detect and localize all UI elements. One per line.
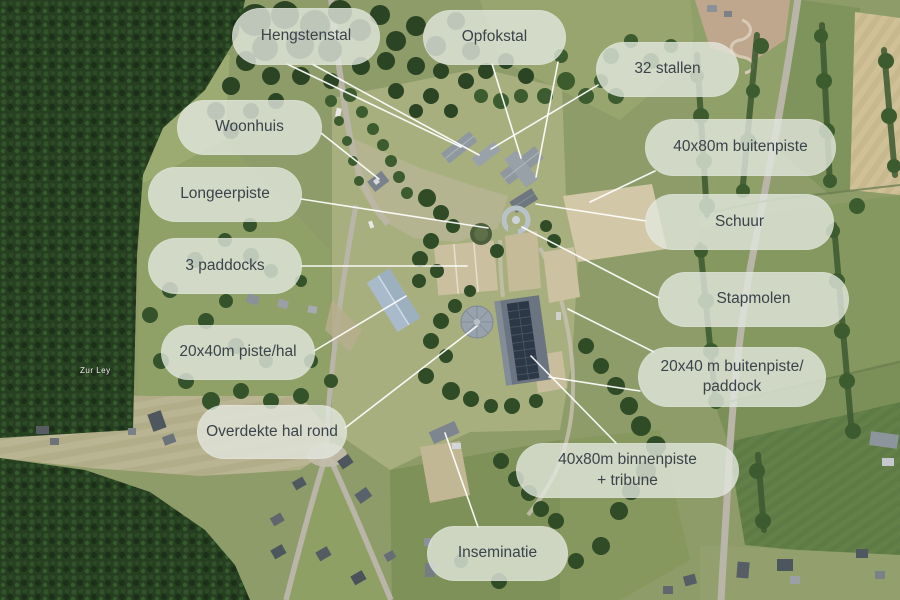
- label-text: Opfokstal: [462, 27, 527, 47]
- label-text: Woonhuis: [215, 117, 284, 137]
- label-text: 20x40m piste/hal: [179, 342, 296, 362]
- lunging-circle-inner: [474, 227, 488, 241]
- label-text: Inseminatie: [458, 543, 537, 563]
- label-text: 3 paddocks: [185, 256, 264, 276]
- label-text: Hengstenstal: [261, 26, 351, 46]
- paddock-20x40: [543, 247, 580, 303]
- label-text-line2: paddock: [703, 377, 762, 397]
- label-longeerpiste: Longeerpiste: [148, 167, 302, 222]
- label-text-line1: 20x40 m buitenpiste/: [660, 357, 803, 377]
- label-schuur: Schuur: [645, 194, 834, 250]
- street-label: Zur Ley: [80, 366, 111, 375]
- label-3-paddocks: 3 paddocks: [148, 238, 302, 294]
- label-hengstenstal: Hengstenstal: [232, 8, 380, 65]
- label-text-line2: + tribune: [597, 471, 658, 491]
- label-buitenpiste-40x80: 40x80m buitenpiste: [645, 119, 836, 176]
- label-overdekte-hal: Overdekte hal rond: [197, 405, 347, 459]
- round-hall-building: [461, 306, 493, 338]
- label-32-stallen: 32 stallen: [596, 42, 739, 97]
- label-text: Schuur: [715, 212, 764, 232]
- label-binnenpiste-40x80: 40x80m binnenpiste + tribune: [516, 443, 739, 498]
- annotated-aerial-view: Zur Ley Hengstenstal Opfokstal 32 stalle…: [0, 0, 900, 600]
- label-text: Stapmolen: [716, 289, 790, 309]
- label-woonhuis: Woonhuis: [177, 100, 322, 155]
- label-stapmolen: Stapmolen: [658, 272, 849, 327]
- label-text: Longeerpiste: [180, 184, 270, 204]
- label-buitenpiste-20x40: 20x40 m buitenpiste/ paddock: [638, 347, 826, 407]
- label-text-line1: 40x80m binnenpiste: [558, 450, 697, 470]
- label-inseminatie: Inseminatie: [427, 526, 568, 581]
- label-opfokstal: Opfokstal: [423, 10, 566, 65]
- label-text: Overdekte hal rond: [206, 422, 338, 442]
- label-text: 40x80m buitenpiste: [673, 137, 807, 157]
- label-text: 32 stallen: [634, 59, 700, 79]
- label-piste-hal-20x40: 20x40m piste/hal: [161, 325, 315, 380]
